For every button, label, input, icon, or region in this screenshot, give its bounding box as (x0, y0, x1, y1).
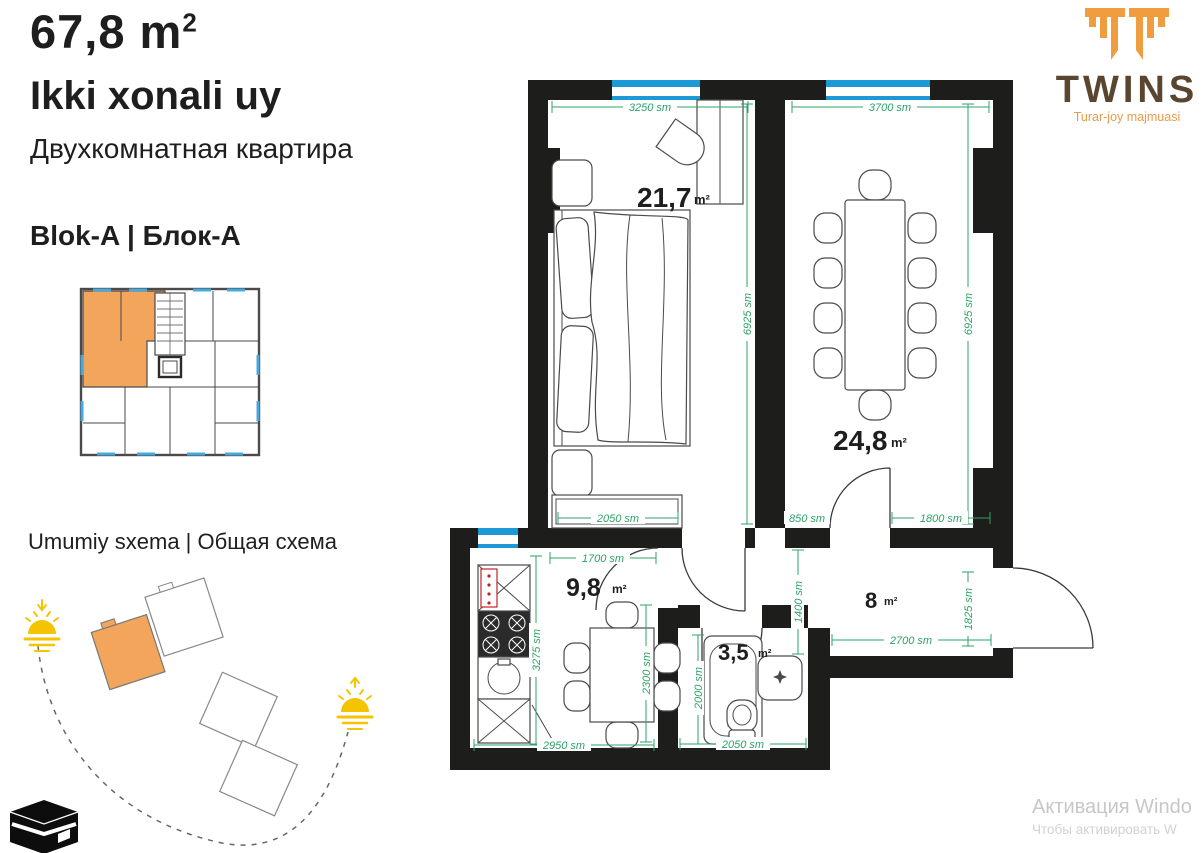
pillow (556, 217, 595, 319)
dining-set (814, 170, 936, 420)
site-scheme-label: Umumiy sxema | Общая схема (28, 529, 337, 555)
dim-counter: 3275 sm (531, 629, 543, 671)
dim-bathroom-bottom: 2050 sm (721, 739, 764, 751)
pillow (556, 325, 594, 433)
twins-logo-tagline: Turar-joy majmuasi (1074, 110, 1181, 124)
entry-door (1013, 568, 1093, 648)
blanket (590, 212, 688, 444)
dim-corridor: 1400 sm (793, 581, 805, 623)
living-door (830, 468, 890, 528)
kaaba-icon (10, 800, 78, 853)
floorplan-page: 67,8 m2 Ikki xonali uy Двухкомнатная ква… (0, 0, 1202, 853)
sunrise-icon (338, 678, 372, 729)
bathroom-area-unit: m² (758, 648, 772, 660)
chair (859, 170, 891, 200)
kitchen-counter (478, 565, 556, 746)
kitchen-window (478, 528, 518, 548)
dim-kitchen-height: 2300 sm (641, 652, 653, 695)
dim-bedroom-height: 6925 sm (742, 293, 754, 335)
building-pair-b (178, 672, 320, 816)
block-label: Blok-A | Блок-А (30, 220, 241, 252)
dim-hallway-bottom: 2700 sm (889, 635, 932, 647)
watermark-line2: Чтобы активировать W (1032, 822, 1202, 837)
chair (814, 303, 842, 333)
living-area-unit: m² (891, 435, 908, 450)
dim-entry: 1825 sm (963, 588, 975, 630)
chair (654, 681, 680, 711)
bathroom-area-label: 3,5 (718, 640, 749, 665)
twins-logo: TWINS Turar-joy majmuasi (1052, 2, 1202, 132)
chair (814, 213, 842, 243)
chair (908, 303, 936, 333)
bedroom-area-unit: m² (694, 192, 711, 207)
toilet (727, 700, 757, 743)
watermark-line1: Активация Windo (1032, 796, 1202, 819)
hallway-area-label: 8 (865, 588, 877, 613)
kitchen-area-unit: m² (612, 582, 627, 596)
area-value: 67,8 m (30, 5, 182, 58)
apartment-area-title: 67,8 m2 (30, 4, 198, 59)
dim-kitchen-top: 1700 sm (582, 553, 624, 565)
title-uzbek: Ikki xonali uy (30, 74, 281, 119)
area-superscript: 2 (182, 7, 197, 37)
dim-living-bottom: 1800 sm (920, 513, 962, 525)
bedroom-door (682, 548, 745, 611)
chair (654, 643, 680, 673)
sunset-icon (25, 600, 59, 651)
stairwell (155, 293, 185, 377)
nightstand (552, 160, 592, 206)
dining-table (845, 200, 905, 390)
living-window (826, 80, 930, 100)
bedroom-area-label: 21,7 (637, 182, 692, 213)
chair (564, 643, 590, 673)
dim-living-width: 3700 sm (869, 102, 911, 114)
dim-bathtub: 2000 sm (693, 667, 705, 710)
twins-logo-wordmark: TWINS (1056, 69, 1198, 111)
chair (814, 258, 842, 288)
chair (606, 722, 638, 748)
dim-dresser: 2050 sm (596, 513, 639, 525)
kitchen-area-label: 9,8 (566, 574, 601, 602)
nightstand (552, 450, 592, 496)
chair (814, 348, 842, 378)
chair (908, 258, 936, 288)
bedroom-furniture (552, 100, 743, 528)
site-scheme (0, 560, 420, 853)
dim-living-door-offset: 850 sm (789, 513, 825, 525)
living-area-label: 24,8 (833, 425, 888, 456)
chair (908, 348, 936, 378)
chair (564, 681, 590, 711)
dim-kitchen-bottom: 2950 sm (542, 740, 585, 752)
twins-logo-mark (1085, 8, 1169, 60)
floor-plan: 21,7 m² 24,8 m² 9,8 m² 3,5 m² 8 m² (440, 60, 1100, 800)
chair (606, 602, 638, 628)
block-floorplate-thumbnail (75, 283, 265, 473)
dim-bedroom-width: 3250 sm (629, 102, 671, 114)
elevator-shaft (159, 357, 181, 377)
building-pair-a (84, 572, 228, 689)
dim-living-height: 6925 sm (963, 293, 975, 335)
highlighted-apartment (83, 291, 165, 387)
chair (908, 213, 936, 243)
windows-activation-watermark: Активация Windo Чтобы активировать W (1032, 796, 1202, 837)
title-russian: Двухкомнатная квартира (30, 133, 353, 165)
hallway-area-unit: m² (884, 596, 898, 608)
chair (859, 390, 891, 420)
sun-path-arc (38, 646, 348, 845)
bedroom-window (612, 80, 700, 100)
